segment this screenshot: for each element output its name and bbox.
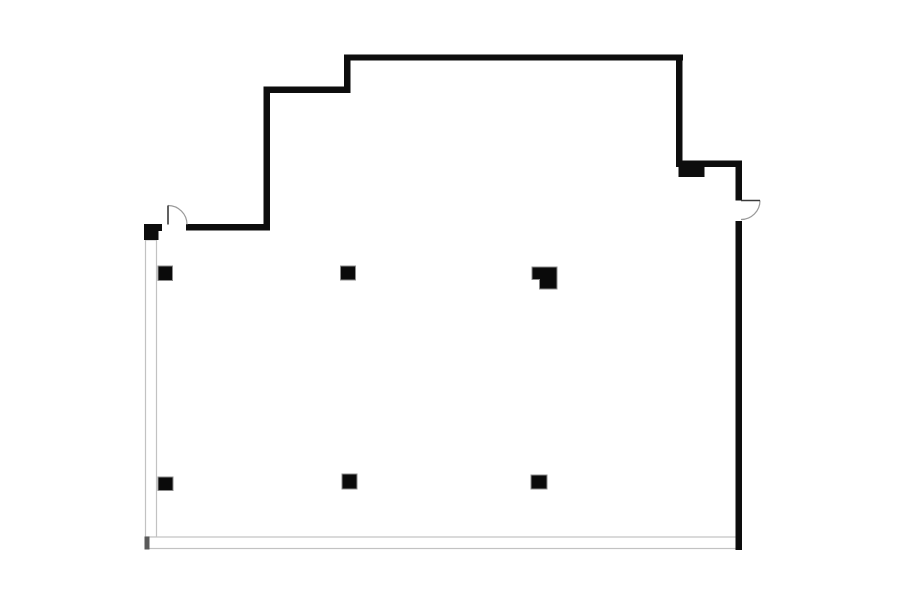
bottom-left-wall-cap <box>145 537 150 550</box>
right-main-wall <box>736 221 743 550</box>
floor-plan-canvas <box>0 0 900 604</box>
plan-background <box>0 0 900 604</box>
bottom-glazed-wall <box>146 537 742 549</box>
right-wall-pilaster <box>679 167 705 177</box>
left-glazed-wall <box>146 240 157 537</box>
top-wall <box>344 55 683 61</box>
top-step-horizontal-wall <box>264 87 351 94</box>
column-lower-middle <box>342 474 357 489</box>
column-upper-middle <box>341 266 356 280</box>
column-lower-right <box>531 475 547 489</box>
right-upper-vertical-wall <box>676 55 683 168</box>
entry-top-wall <box>186 224 270 231</box>
left-upper-vertical-wall <box>264 87 271 231</box>
left-corner-block <box>144 229 159 240</box>
column-upper-left <box>158 266 173 281</box>
floor-plan-svg <box>0 0 900 604</box>
column-lower-left <box>158 477 173 491</box>
right-jog-wall <box>676 161 742 168</box>
right-wall-above-door <box>736 161 743 201</box>
